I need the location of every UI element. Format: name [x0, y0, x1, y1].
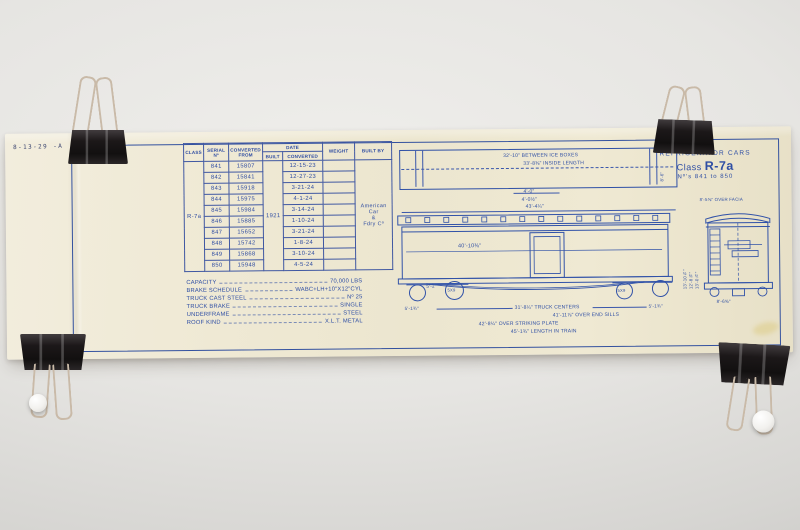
clip-handle-ball — [29, 394, 47, 412]
dim-height-a: 13'-10¾" — [682, 215, 688, 289]
car-number: 841 — [204, 161, 229, 172]
spec-value: Nº 25 — [347, 294, 362, 300]
spec-value: Steel — [343, 310, 362, 316]
weight-cell — [323, 204, 355, 215]
converted-date: 4-5-24 — [284, 259, 324, 270]
spec-label: Truck Brake — [187, 304, 230, 310]
car-roster-table: Class Serial Nº Converted From Date Weig… — [183, 141, 393, 272]
weight-cell — [324, 259, 356, 270]
dim-right-truck: 5'-1¾" — [649, 303, 663, 308]
dim-axle-spacing: 5'-2" — [426, 284, 436, 289]
class-name: R-7a — [705, 159, 734, 173]
car-number: 847 — [204, 227, 229, 238]
weight-cell — [323, 160, 355, 171]
spec-list: Capacity70,000 LBS Brake ScheduleWABC+LH… — [186, 276, 362, 326]
class-word: Class — [677, 162, 702, 172]
car-number: 846 — [204, 216, 229, 227]
clip-handle — [52, 363, 73, 420]
weight-cell — [323, 193, 355, 204]
spec-label: Underframe — [187, 312, 230, 318]
bottom-dimension-lines: 5'-1¾" 31'-8¼" Truck Centers 5'-1¾" 41'-… — [397, 301, 689, 344]
spec-value: X.L.T. Metal — [325, 318, 363, 324]
weight-cell — [323, 237, 355, 248]
converted-date: 1-8-24 — [283, 237, 323, 248]
serial-number: 15742 — [229, 238, 263, 249]
weight-cell — [323, 215, 355, 226]
weight-cell — [323, 226, 355, 237]
handwritten-date-note: 8-13-29 -A — [13, 143, 63, 151]
clip-body — [653, 119, 716, 155]
binder-clip-top-left — [64, 74, 132, 166]
dim-over-facia: 8'-5⅝" Over Facia — [700, 197, 743, 202]
dim-side-inside-length: 40'-10⅜" — [458, 243, 481, 249]
serial-number: 15984 — [229, 205, 263, 216]
serial-number: 15807 — [229, 161, 263, 172]
serial-number: 15948 — [230, 260, 264, 271]
end-view-drawing: 8'-5⅝" Over Facia 8 — [698, 194, 779, 311]
col-header-built-by: Built By — [355, 142, 392, 160]
side-elevation-drawing: 40'-10⅜" 5x9 5x9 5'-2" — [396, 211, 683, 308]
serial-number: 15918 — [229, 183, 263, 194]
converted-date: 3-21-24 — [283, 182, 323, 193]
dim-left-truck: 5'-1¾" — [405, 306, 419, 311]
converted-date: 4-1-24 — [283, 193, 323, 204]
binder-clip-bottom-right — [709, 340, 798, 442]
car-number: 849 — [205, 249, 230, 260]
car-number: 844 — [204, 194, 229, 205]
converted-date: 3-10-24 — [284, 248, 324, 259]
dim-over-end-sills: 41'-11⅞" Over End Sills — [553, 312, 619, 319]
weight-cell — [323, 171, 355, 182]
converted-date: 3-14-24 — [283, 204, 323, 215]
serial-number: 15841 — [229, 172, 263, 183]
car-number: 842 — [204, 172, 229, 183]
car-number: 848 — [204, 238, 229, 249]
spec-value: 70,000 LBS — [330, 278, 362, 284]
end-view-linework — [698, 204, 779, 297]
class-value: R-7a — [184, 161, 205, 271]
dim-four-feet-half: 4'-0½" — [522, 197, 537, 203]
dim-over-striking-plate: 42'-8¼" Over Striking Plate — [479, 320, 559, 327]
car-number: 850 — [205, 260, 230, 271]
serial-number: 15885 — [229, 216, 263, 227]
spec-value: Single — [340, 302, 363, 308]
serial-number: 15868 — [230, 249, 264, 260]
journal-size-label: 5x9 — [617, 288, 625, 293]
converted-date: 1-10-24 — [283, 215, 323, 226]
dim-between-ice-boxes: 32'-10" Between Ice Boxes — [503, 152, 578, 159]
side-elevation-linework — [396, 211, 683, 308]
spec-row-roof-kind: Roof KindX.L.T. Metal — [187, 316, 363, 326]
car-number: 845 — [204, 205, 229, 216]
journal-size-label: 5x9 — [447, 287, 455, 292]
dim-inside-length: 33'-8⅜" Inside Length — [523, 160, 584, 167]
built-year: 1921 — [263, 161, 284, 271]
col-header-serial: Serial Nº — [204, 143, 229, 161]
spec-label: Brake Schedule — [186, 288, 242, 295]
weight-cell — [324, 248, 356, 259]
dim-four-feet: 4'-0" — [523, 189, 534, 195]
spec-label: Roof Kind — [187, 320, 221, 326]
serial-number: 15975 — [229, 194, 263, 205]
converted-date: 3-21-24 — [283, 226, 323, 237]
dim-height-b: 12'-8⅝" — [688, 219, 694, 289]
clip-body — [68, 130, 128, 164]
dim-length-in-train: 45'-1¾" Length in Train — [511, 328, 577, 335]
binder-clip-top-right — [651, 85, 721, 157]
spec-label: Truck Cast Steel — [186, 295, 246, 302]
col-header-weight: Weight — [323, 142, 355, 160]
spec-value: WABC+LH+10"x12"CYL — [295, 286, 362, 293]
spec-label: Capacity — [186, 280, 216, 286]
clip-handle — [72, 75, 98, 135]
serial-number: 15652 — [229, 227, 263, 238]
dim-truck-centers: 31'-8¼" Truck Centers — [515, 304, 580, 311]
photo-of-blueprint: 8-13-29 -A Class Serial Nº Converted Fro… — [0, 0, 800, 530]
converted-date: 12-15-23 — [283, 160, 323, 171]
dim-over-sills: 8'-6⅝" — [717, 299, 731, 304]
weight-cell — [323, 182, 355, 193]
col-header-class: Class — [184, 143, 204, 161]
clip-handle — [725, 376, 750, 432]
col-header-built: Built — [263, 152, 283, 161]
dim-overall-length: 43'-4¼" — [526, 204, 544, 210]
converted-date: 12-27-23 — [283, 171, 323, 182]
built-by-value: American Car & Fdry Cº — [355, 160, 393, 270]
binder-clip-bottom-left — [14, 332, 94, 420]
clip-handle — [95, 76, 119, 135]
car-number: 843 — [204, 183, 229, 194]
title-class: Class R-7a — [635, 158, 775, 173]
col-header-converted-from: Converted From — [229, 143, 263, 161]
col-header-converted: Converted — [283, 151, 323, 160]
